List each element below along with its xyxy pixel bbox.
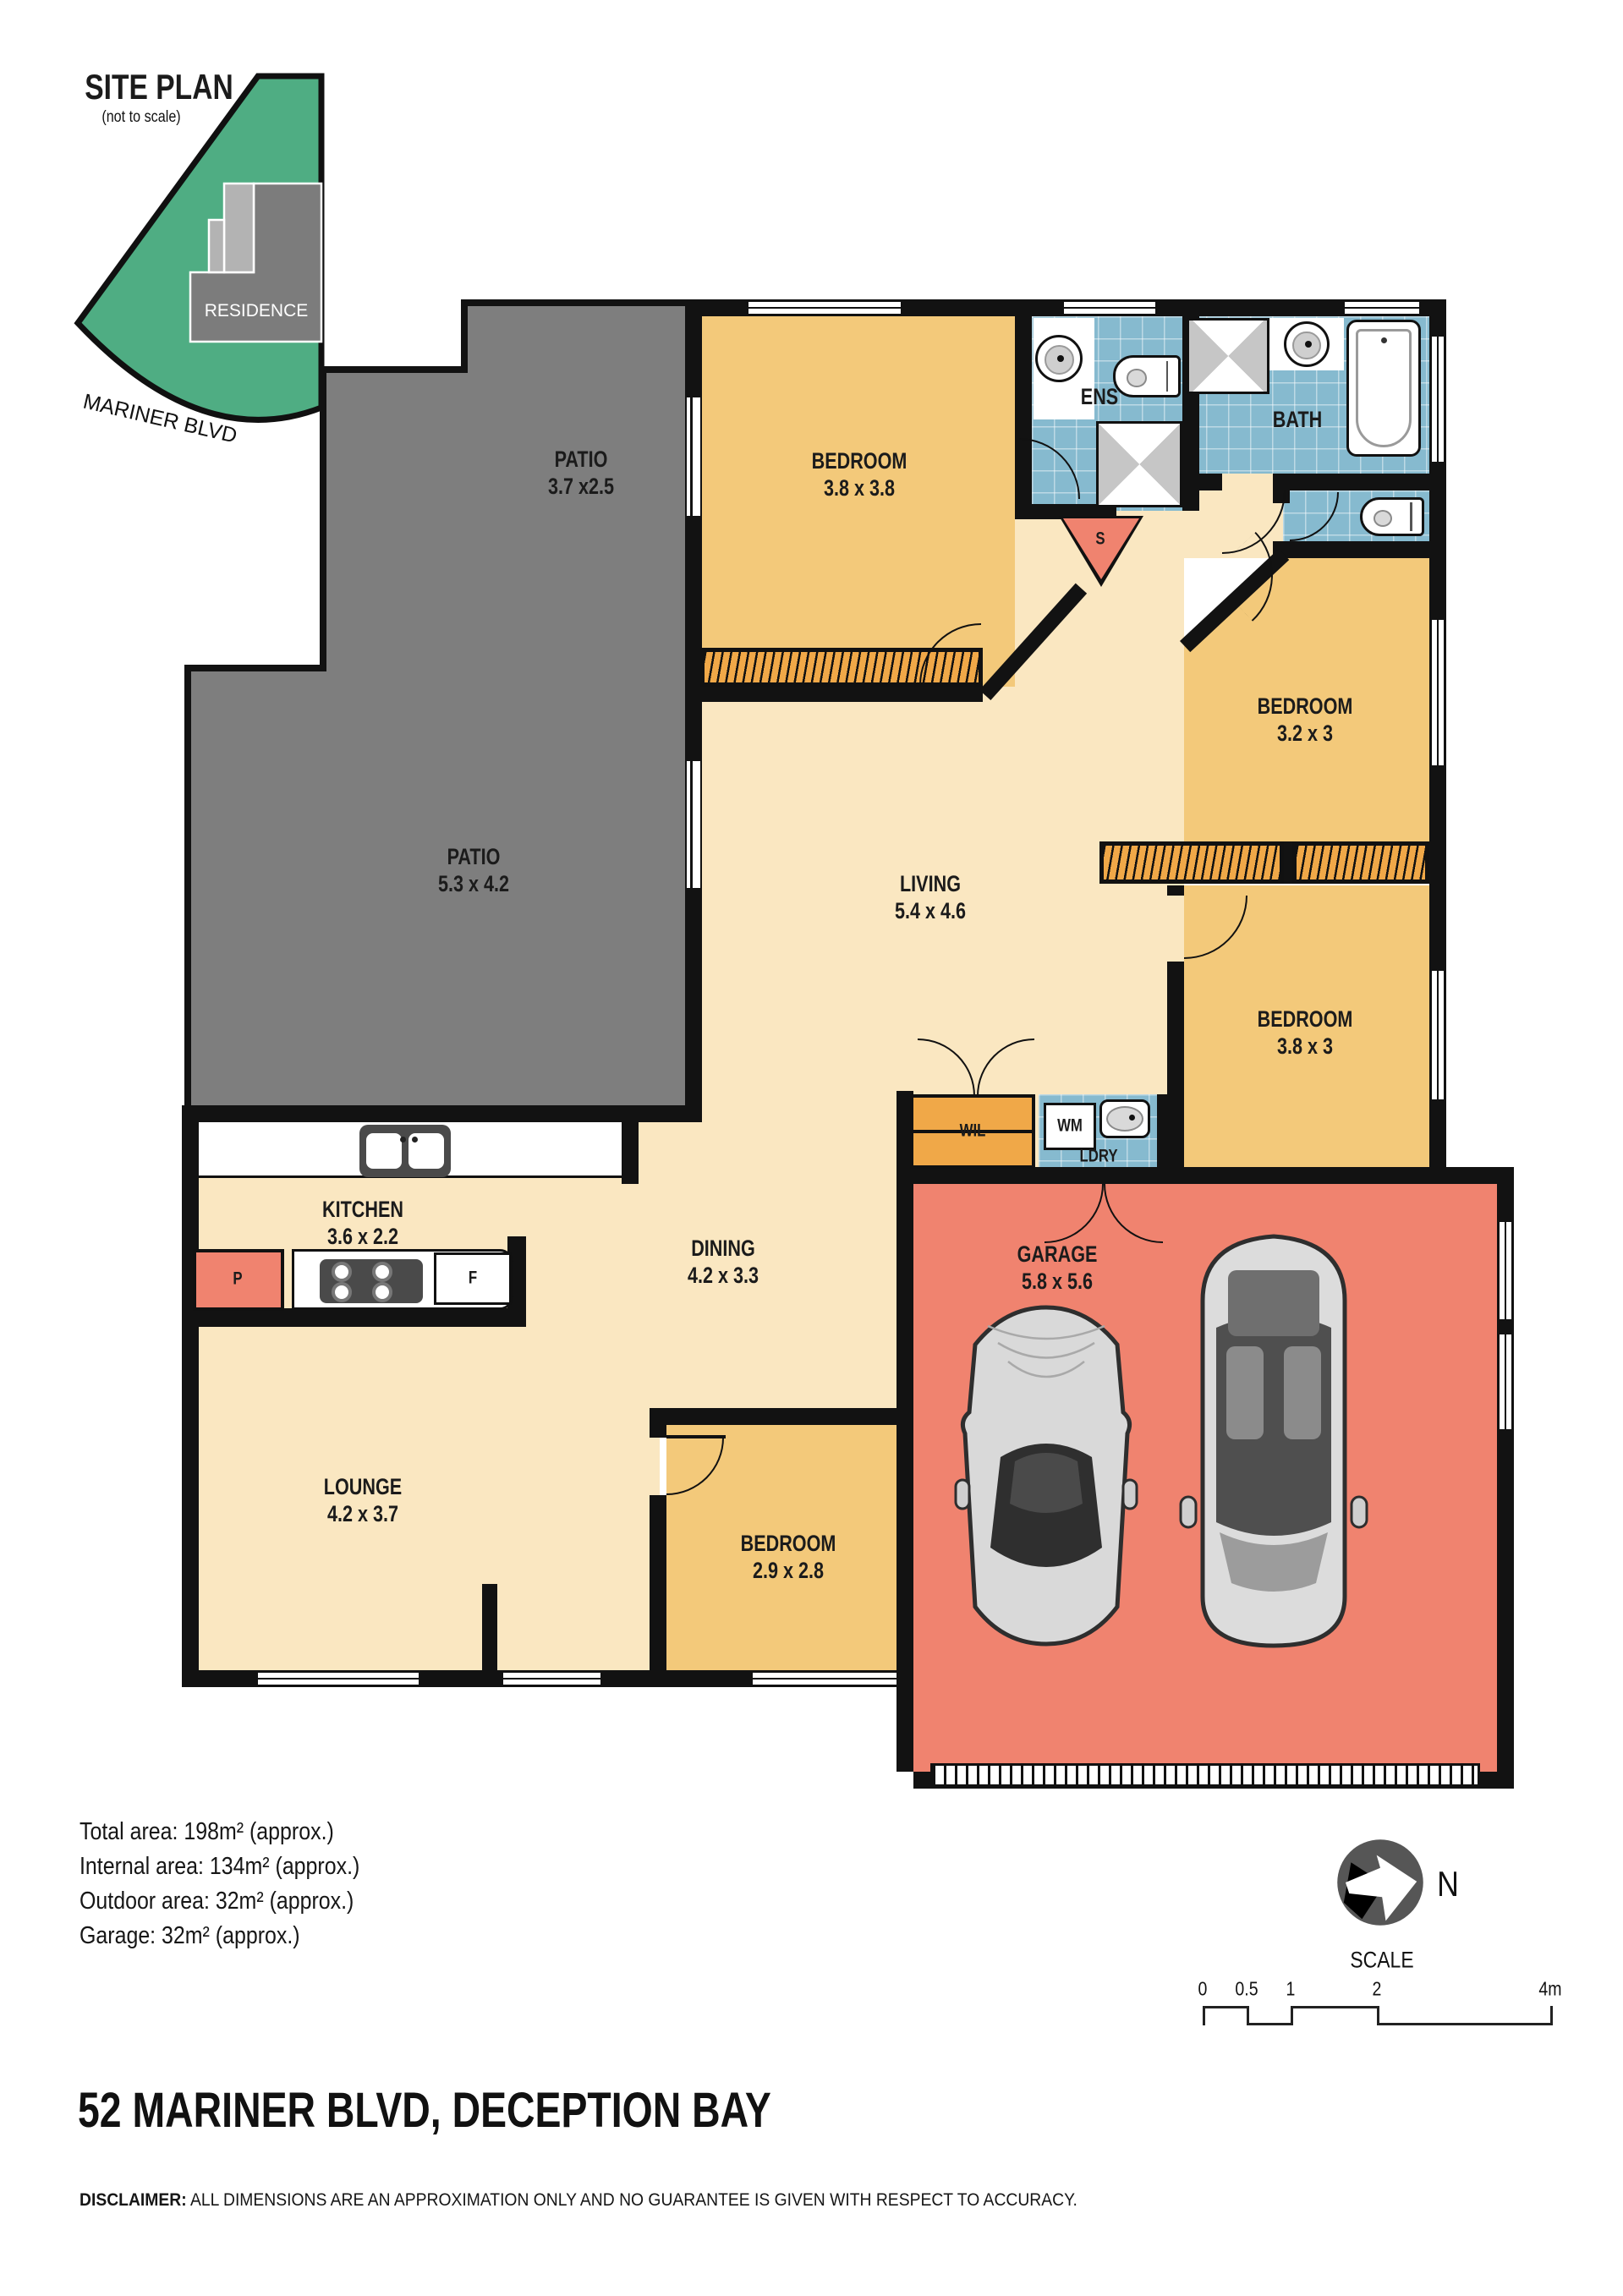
toilet-icon — [1113, 355, 1181, 397]
disclaimer: DISCLAIMER: ALL DIMENSIONS ARE AN APPROX… — [80, 2190, 1077, 2211]
room-label-pantry: P — [233, 1269, 242, 1290]
burner — [372, 1282, 392, 1302]
room-name: ENS — [1081, 384, 1118, 411]
scale-bar — [1203, 2006, 1247, 2008]
room-name: WM — [1057, 1116, 1083, 1137]
room-name: BATH — [1273, 407, 1322, 434]
page-title: 52 MARINER BLVD, DECEPTION BAY — [78, 2082, 771, 2139]
room-name: LIVING — [895, 871, 966, 898]
room-name: PATIO — [548, 447, 614, 474]
wall — [650, 1408, 913, 1425]
laundry-tub-icon — [1099, 1099, 1150, 1138]
disclaimer-text: ALL DIMENSIONS ARE AN APPROXIMATION ONLY… — [187, 2190, 1077, 2210]
garage-door — [930, 1763, 1480, 1787]
burner — [332, 1262, 352, 1282]
window — [753, 1670, 896, 1687]
scale-tick-label: 0.5 — [1235, 1978, 1258, 2001]
scale-tick-label: 2 — [1373, 1978, 1382, 2001]
room-label-lounge: LOUNGE 4.2 x 3.7 — [324, 1474, 402, 1528]
window — [1429, 971, 1446, 1099]
garage-side-door — [1497, 1334, 1514, 1429]
room-name: BEDROOM — [1258, 1006, 1353, 1033]
burner — [372, 1262, 392, 1282]
wall — [622, 1105, 639, 1184]
wall — [650, 1495, 666, 1670]
room-name: WIL — [960, 1121, 986, 1143]
room-label-bedroom2: BEDROOM 3.2 x 3 — [1258, 693, 1353, 748]
room-label-wil: WIL — [960, 1121, 986, 1143]
scale-tick-label: 4m — [1538, 1978, 1561, 2001]
room-dims: 3.8 x 3 — [1258, 1033, 1353, 1060]
shower-icon — [1187, 318, 1269, 394]
room-label-fridge: F — [469, 1269, 477, 1290]
room-label-bedroom4: BEDROOM 2.9 x 2.8 — [741, 1531, 836, 1585]
room-label-ens: ENS — [1081, 384, 1118, 411]
room-label-bedroom-master: BEDROOM 3.8 x 3.8 — [812, 448, 907, 502]
window — [748, 299, 901, 316]
room-name: BEDROOM — [1258, 693, 1353, 721]
room-dims: 5.4 x 4.6 — [895, 898, 966, 925]
toilet-icon — [1360, 497, 1424, 536]
wall — [896, 1091, 913, 1772]
site-patio-shape — [224, 184, 254, 272]
patio-outline — [461, 299, 468, 373]
car-sedan-icon — [1176, 1218, 1372, 1664]
basin-icon — [1284, 321, 1330, 367]
scale-bar-tick — [1377, 2006, 1379, 2025]
north-label: N — [1437, 1864, 1459, 1904]
room-name: LDRY — [1079, 1147, 1117, 1168]
car-sports-icon — [954, 1292, 1138, 1658]
window — [503, 1670, 600, 1687]
room-name: LOUNGE — [324, 1474, 402, 1501]
room-dims: 5.8 x 5.6 — [1017, 1269, 1098, 1296]
patio-outline — [184, 665, 191, 1105]
wall — [482, 1584, 497, 1670]
area-summary: Total area: 198m² (approx.) Internal are… — [80, 1815, 359, 1954]
room-label-patio-top: PATIO 3.7 x2.5 — [548, 447, 614, 501]
room-label-storage: S — [1095, 529, 1105, 551]
room-label-garage: GARAGE 5.8 x 5.6 — [1017, 1241, 1098, 1296]
room-label-living: LIVING 5.4 x 4.6 — [895, 871, 966, 925]
sliding-door — [687, 397, 700, 516]
room-label-bedroom3: BEDROOM 3.8 x 3 — [1258, 1006, 1353, 1060]
scale-bar — [1247, 2023, 1291, 2025]
room-dims: 3.8 x 3.8 — [812, 475, 907, 502]
room-name: F — [469, 1269, 477, 1290]
room-dims: 3.6 x 2.2 — [322, 1224, 403, 1251]
room-name: BEDROOM — [741, 1531, 836, 1558]
wardrobe-bedroom — [1292, 841, 1429, 884]
room-name: S — [1095, 529, 1105, 551]
patio-outline — [461, 299, 702, 306]
room-name: KITCHEN — [322, 1197, 403, 1224]
burner — [332, 1282, 352, 1302]
patio-outline — [320, 366, 326, 671]
garage-side-door — [1497, 1222, 1514, 1319]
window — [258, 1670, 419, 1687]
wall — [702, 687, 983, 702]
area-total: Total area: 198m² (approx.) — [80, 1815, 359, 1849]
room-label-bath: BATH — [1273, 407, 1322, 434]
scale-bar-tick — [1291, 2006, 1293, 2025]
window — [1429, 620, 1446, 765]
window — [1345, 299, 1419, 316]
shower-icon — [1096, 421, 1182, 507]
site-plan-map: RESIDENCE MARINER BLVD — [47, 44, 338, 454]
patio-outline — [184, 665, 326, 671]
disclaimer-label: DISCLAIMER: — [80, 2190, 187, 2210]
area-garage: Garage: 32m² (approx.) — [80, 1919, 359, 1954]
room-dims: 3.2 x 3 — [1258, 721, 1353, 748]
wall — [896, 1167, 1514, 1184]
wall — [1273, 474, 1429, 490]
floorplan-page: SITE PLAN (not to scale) RESIDENCE MARIN… — [0, 0, 1623, 2296]
room-name: DINING — [688, 1236, 759, 1263]
sink-bowl — [366, 1133, 402, 1169]
scale-bar-tick — [1550, 2006, 1553, 2025]
room-dims: 4.2 x 3.7 — [324, 1501, 402, 1528]
scale-tick-label: 0 — [1198, 1978, 1208, 2001]
site-residence-label: RESIDENCE — [205, 301, 309, 321]
patio-top-floor — [461, 303, 702, 373]
wall — [1273, 541, 1429, 558]
wardrobe-hall — [1099, 841, 1284, 884]
wall — [1167, 962, 1184, 1167]
sink-tap — [412, 1137, 418, 1143]
room-name: PATIO — [438, 844, 509, 871]
wall — [1157, 1094, 1167, 1167]
sink-tap — [400, 1137, 406, 1143]
room-label-wm: WM — [1057, 1116, 1083, 1137]
north-arrow-icon — [1335, 1837, 1426, 1928]
wall — [182, 1105, 199, 1687]
room-dims: 5.3 x 4.2 — [438, 871, 509, 898]
door-leaf — [666, 1435, 726, 1438]
cooktop-icon — [320, 1259, 423, 1303]
wall — [650, 1425, 666, 1438]
basin-icon — [1035, 335, 1083, 382]
scale-bar — [1377, 2023, 1550, 2025]
room-name: P — [233, 1269, 242, 1290]
room-label-ldry: LDRY — [1079, 1147, 1117, 1168]
kitchen-sink-icon — [359, 1125, 451, 1177]
room-dims: 4.2 x 3.3 — [688, 1263, 759, 1290]
room-name: GARAGE — [1017, 1241, 1098, 1269]
sliding-door — [687, 761, 700, 888]
bathtub-icon — [1346, 320, 1421, 457]
area-internal: Internal area: 134m² (approx.) — [80, 1849, 359, 1884]
scale-title: SCALE — [1350, 1948, 1413, 1974]
area-outdoor: Outdoor area: 32m² (approx.) — [80, 1884, 359, 1919]
room-label-kitchen: KITCHEN 3.6 x 2.2 — [322, 1197, 403, 1251]
room-label-dining: DINING 4.2 x 3.3 — [688, 1236, 759, 1290]
room-dims: 3.7 x2.5 — [548, 474, 614, 501]
wall — [182, 1308, 526, 1327]
site-patio-shape-2 — [209, 220, 224, 272]
scale-bar-tick — [1203, 2006, 1205, 2025]
wall — [1184, 474, 1222, 490]
scale-tick-label: 1 — [1286, 1978, 1296, 2001]
scale-bar-tick — [1247, 2006, 1249, 2025]
patio-outline — [320, 366, 468, 373]
wall — [1167, 885, 1184, 896]
room-label-patio-main: PATIO 5.3 x 4.2 — [438, 844, 509, 898]
room-name: BEDROOM — [812, 448, 907, 475]
scale-bar — [1291, 2006, 1377, 2008]
window — [1429, 337, 1446, 462]
room-dims: 2.9 x 2.8 — [741, 1558, 836, 1585]
window — [1064, 299, 1155, 316]
patio-mid-floor — [320, 373, 702, 671]
